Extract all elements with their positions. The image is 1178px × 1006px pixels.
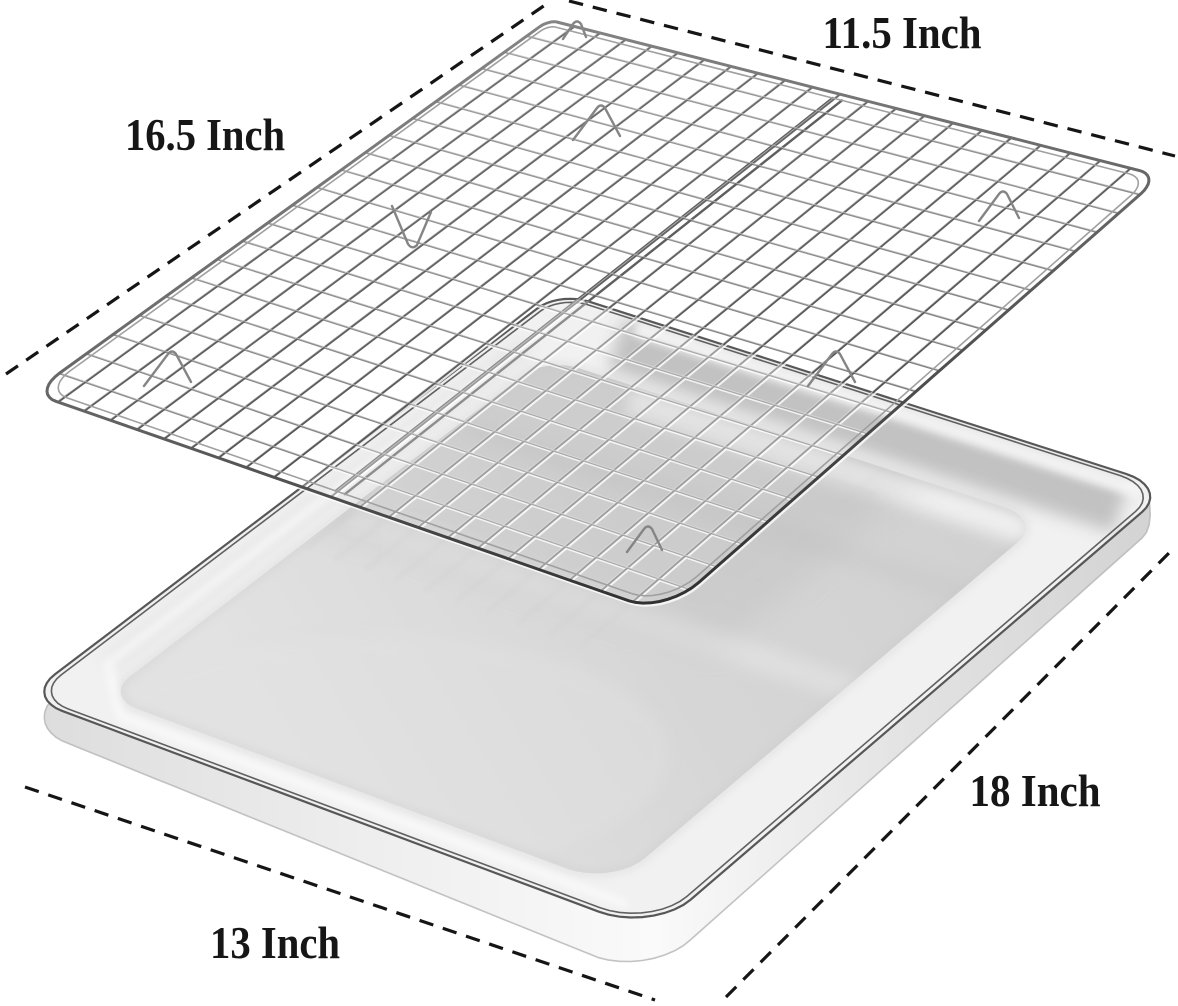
svg-text:18 Inch: 18 Inch: [970, 765, 1101, 816]
svg-text:11.5 Inch: 11.5 Inch: [823, 7, 982, 58]
svg-text:16.5 Inch: 16.5 Inch: [125, 109, 285, 160]
svg-text:13 Inch: 13 Inch: [210, 917, 340, 968]
